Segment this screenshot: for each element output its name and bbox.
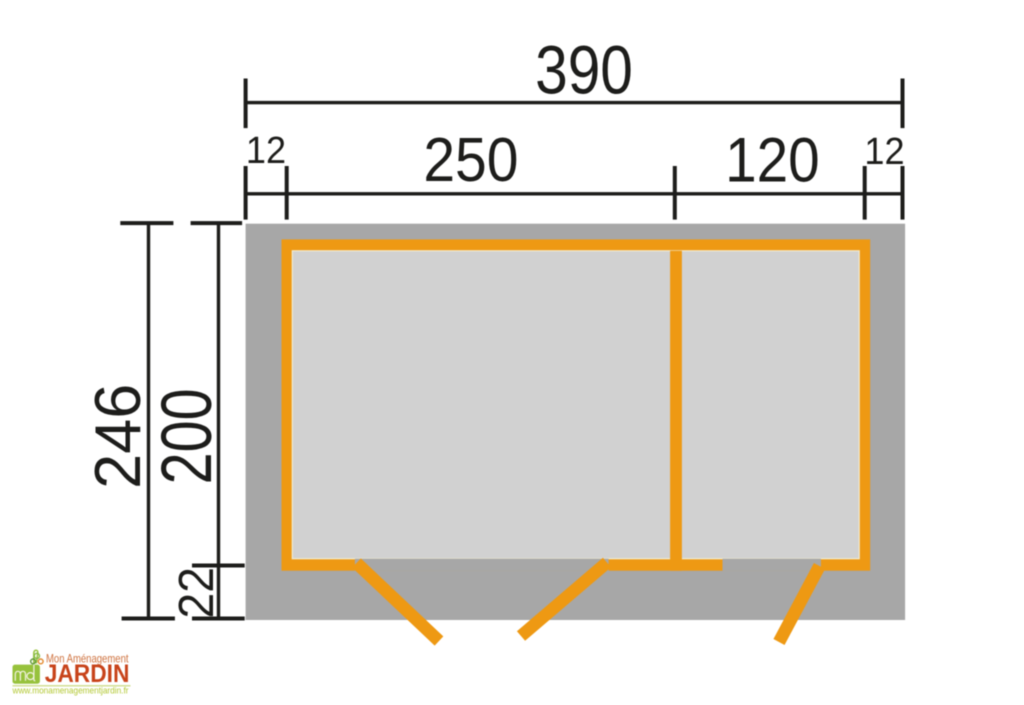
svg-text:JARDIN: JARDIN bbox=[45, 660, 130, 688]
svg-text:390: 390 bbox=[535, 31, 633, 109]
svg-text:120: 120 bbox=[725, 125, 820, 195]
svg-text:250: 250 bbox=[423, 125, 518, 195]
svg-text:12: 12 bbox=[246, 128, 286, 171]
svg-text:12: 12 bbox=[864, 129, 904, 172]
svg-text:22: 22 bbox=[170, 567, 224, 618]
svg-text:www.monamenagementjardin.fr: www.monamenagementjardin.fr bbox=[12, 685, 129, 696]
svg-text:246: 246 bbox=[81, 384, 154, 489]
svg-text:200: 200 bbox=[147, 388, 226, 484]
